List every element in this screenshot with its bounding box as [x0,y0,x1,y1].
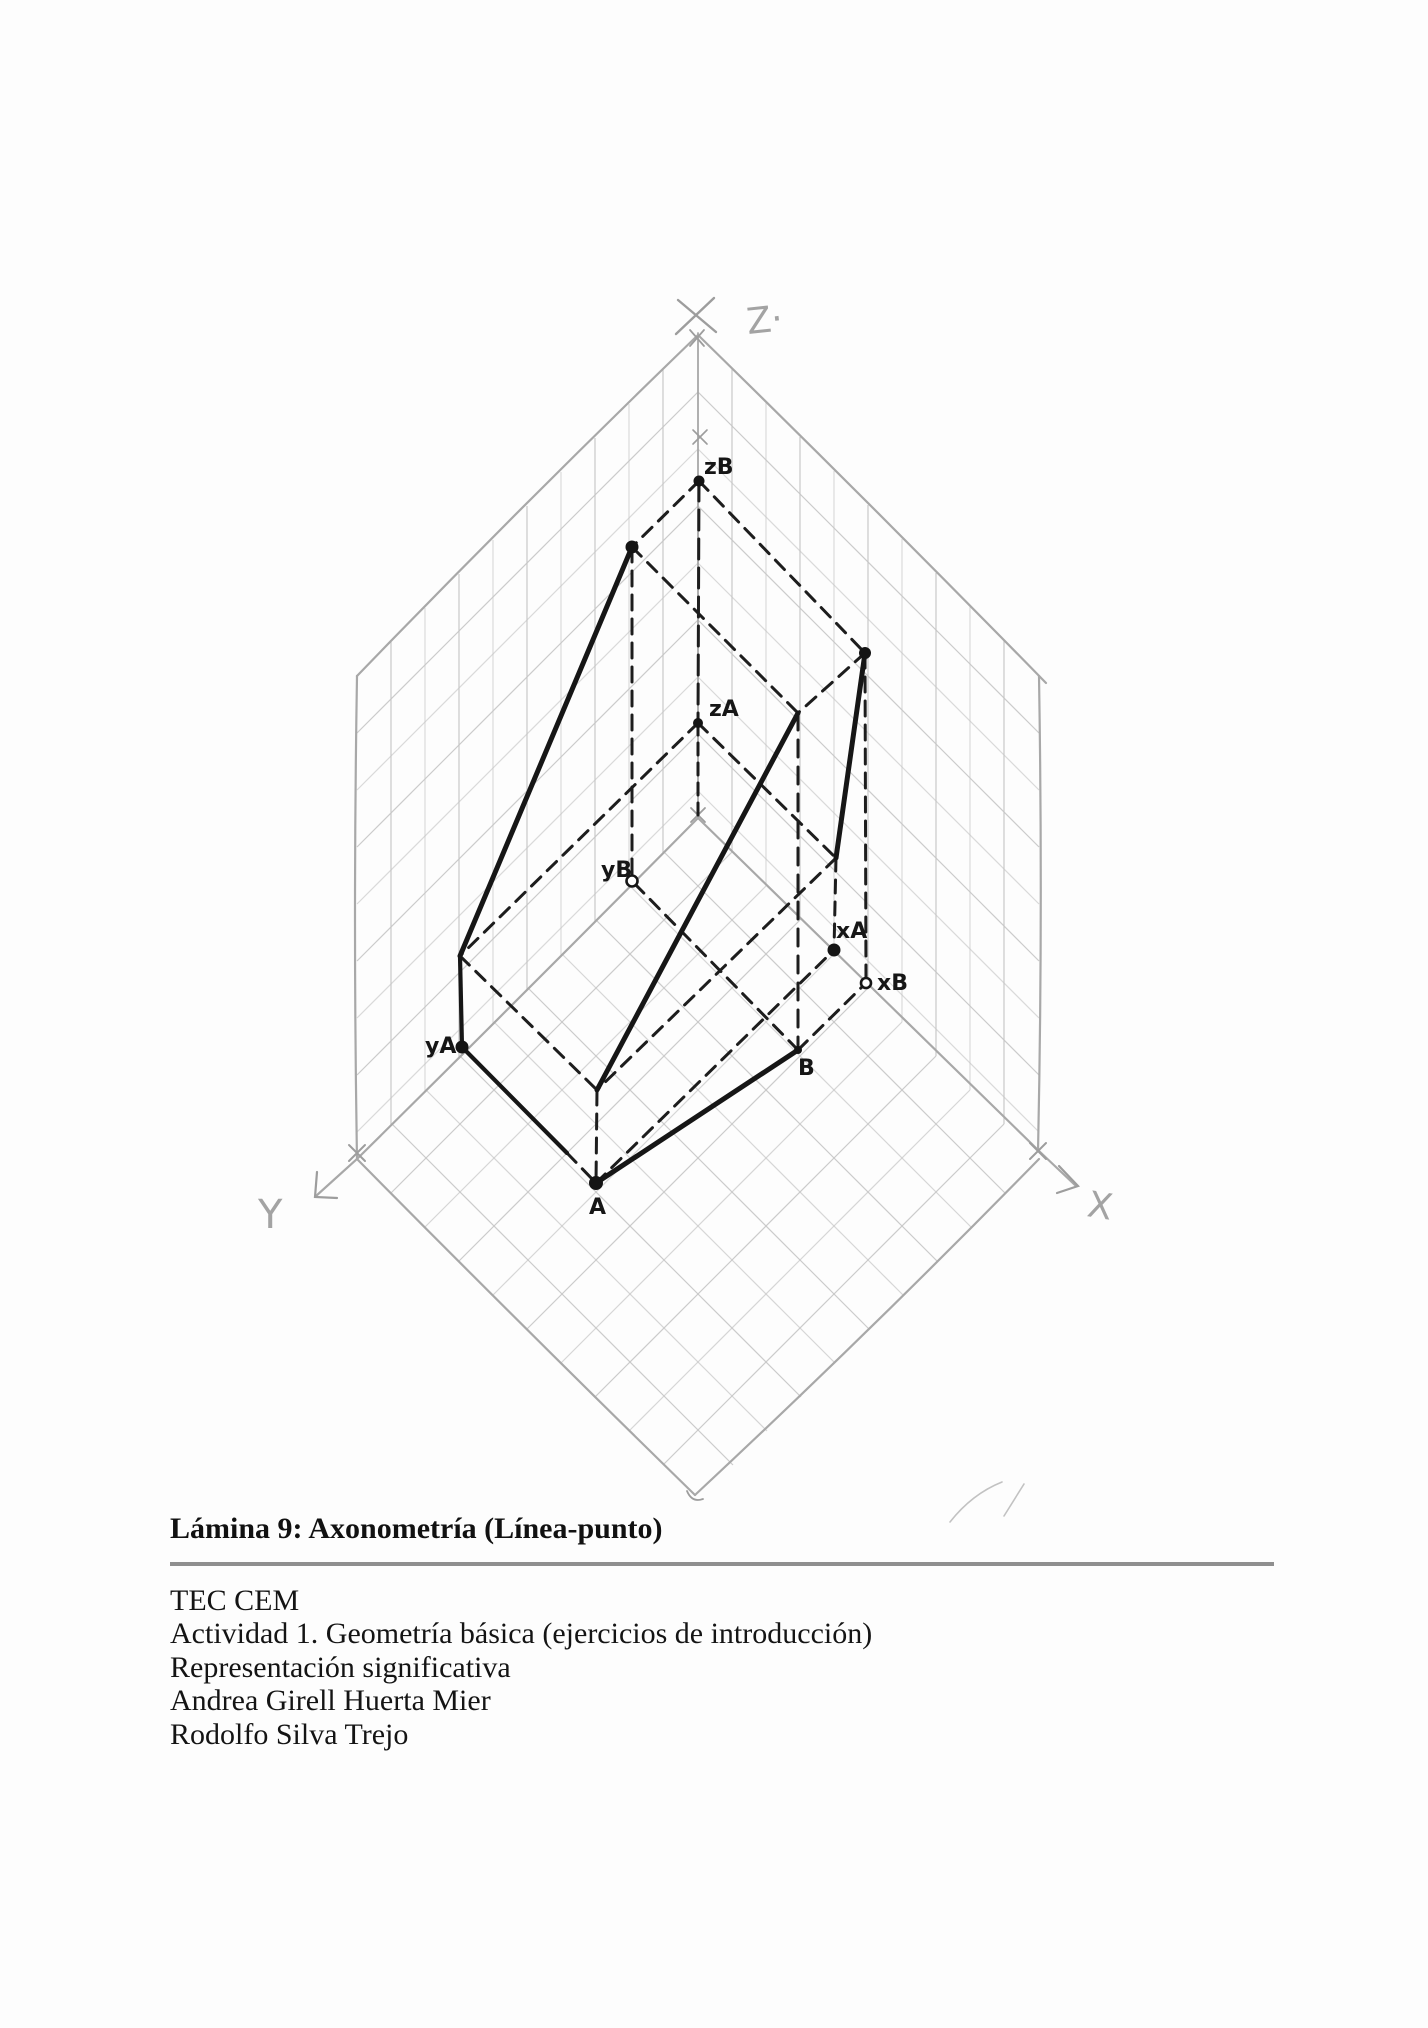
ray-groundB-to-xB [798,983,866,1050]
point-zB [694,476,705,487]
page-title: Lámina 9: Axonometría (Línea-punto) [170,1512,1070,1546]
frontal-projection-AB [460,547,632,956]
credit-line: Andrea Girell Huerta Mier [170,1684,1170,1717]
axis-label-x: X [1085,1184,1116,1228]
ray-frontalB-to-3dB [632,547,798,713]
left-wall-side-edge [355,676,357,1159]
label-A: A [589,1195,606,1220]
ray-zB-to-profile-B [699,481,865,653]
point-yA [456,1041,469,1054]
label-yB: yB [601,858,632,883]
point-B [794,1046,802,1054]
grid-line [392,1124,733,1465]
ray-zB-to-frontal-B [632,481,699,547]
credit-line: TEC CEM [170,1584,1170,1617]
credit-line: Rodolfo Silva Trejo [170,1718,1170,1751]
grid-line [595,1056,936,1397]
right-wall-top-edge [698,335,1046,683]
pencil-axis-labels: Z· Y X [257,298,1115,1238]
ray-frontalA-to-3dA [460,956,597,1090]
grid-line [493,954,834,1295]
label-xA: xA [836,919,867,944]
credit-line: Representación significativa [170,1651,1170,1684]
z-axis-dashed-zB-zA [698,481,699,723]
right-wall-side-edge [1038,676,1041,1151]
frontalA-to-yA-segment [460,956,462,1047]
ray-profileB-to-3dB [798,653,865,713]
grid-line [562,954,903,1295]
credits-block: TEC CEM Actividad 1. Geometría básica (e… [170,1584,1170,1751]
label-B: B [798,1056,815,1081]
axis-label-z: Z· [745,298,785,343]
ray-3dA-to-groundA [596,1090,597,1183]
grid-line [629,1090,970,1431]
grid-line [460,1056,801,1397]
divider-rule [170,1562,1274,1566]
point-xB-open [861,978,871,988]
axis-label-y: Y [257,1192,283,1238]
point-A [589,1176,603,1190]
ray-groundB-to-yB [632,881,798,1050]
point-labels: zB zA yB yA xA xB A B [425,455,908,1220]
scanned-document-page: Z· Y X [0,0,1428,2028]
point-profile-B [859,647,871,659]
profile-projection-AB [836,653,865,858]
point-xA [828,944,841,957]
x-axis-fold-edge [698,818,1076,1186]
credit-line: Actividad 1. Geometría básica (ejercicio… [170,1617,1170,1650]
apex-scribble-cross [676,298,716,334]
label-yA: yA [425,1034,456,1059]
grid-line [528,988,869,1329]
label-xB: xB [877,971,908,996]
label-zA: zA [709,697,739,722]
label-zB: zB [704,455,734,480]
grid-line [494,1022,835,1363]
point-zA [693,718,703,728]
axis-tick-cross [693,430,707,444]
horizontal-projection-AB [596,1050,798,1183]
grid-line [527,988,868,1329]
grid-line [459,920,800,1261]
grid-line [561,1022,902,1363]
grid-line [663,1124,1004,1465]
point-frontal-B [626,541,639,554]
ground-left-edge [357,1159,695,1495]
